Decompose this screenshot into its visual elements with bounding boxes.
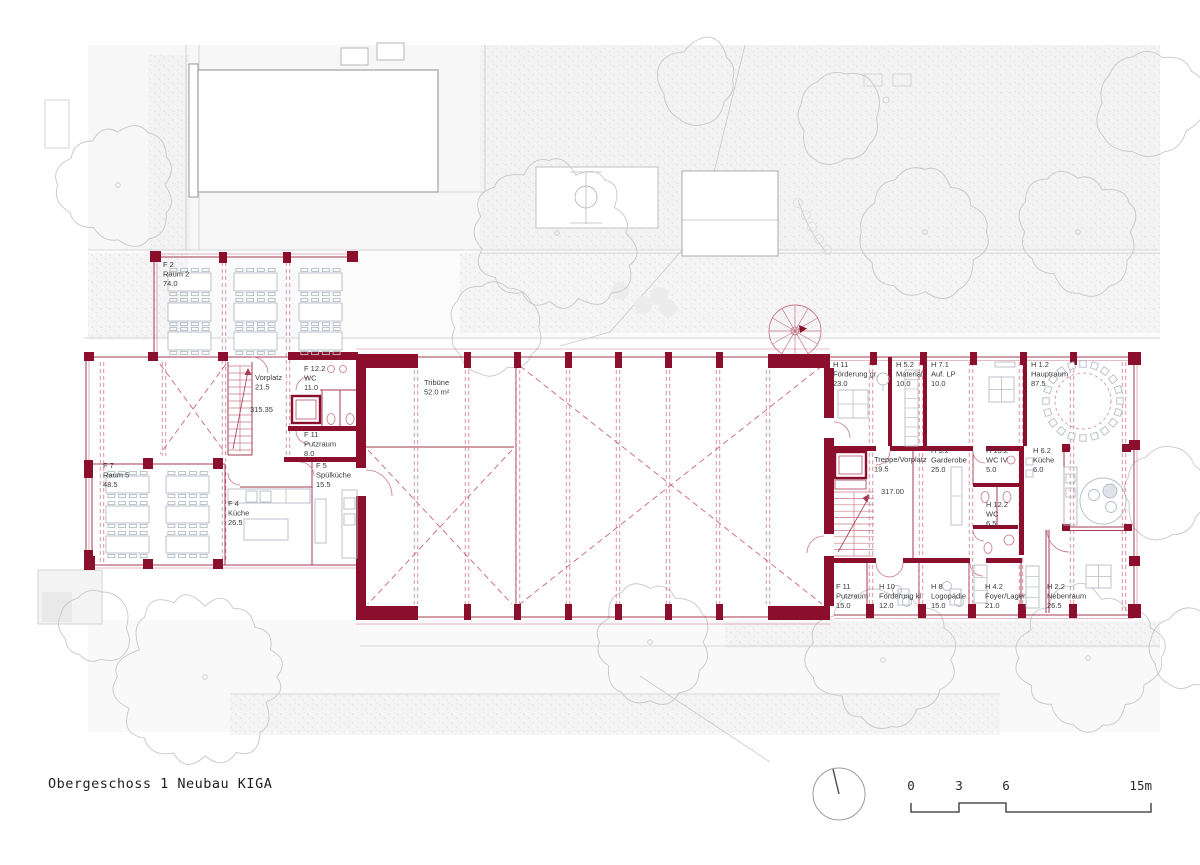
room-label-f11-right: F 11 Putzraum 15.0 xyxy=(836,582,870,610)
scale-6: 6 xyxy=(1002,778,1010,793)
plan-title: Obergeschoss 1 Neubau KIGA xyxy=(48,776,272,792)
room-label-treppe: Treppe/Vorplatz 19.5 xyxy=(874,455,929,474)
scale-bar: 0 3 6 15m xyxy=(907,778,1152,812)
room-label-h7-1: H 7.1 Auf. LP 10.0 xyxy=(931,360,958,388)
scale-3: 3 xyxy=(955,778,963,793)
room-label-f12-2: F 12.2 WC 11.0 xyxy=(304,364,327,392)
room-label-h8: H 8 Logopädie 15.0 xyxy=(931,582,968,610)
scale-15m: 15m xyxy=(1129,778,1152,793)
room-label-h1-2: H 1.2 Hauptraum 87.5 xyxy=(1031,360,1070,388)
sheet-footer: Obergeschoss 1 Neubau KIGA 0 3 6 15m xyxy=(48,768,1152,820)
level-left: 315.35 xyxy=(250,405,273,414)
room-label-f5: F 5 Spülküche 15.5 xyxy=(316,461,353,489)
room-label-h12-2: H 12.2 WC 6.5 xyxy=(986,500,1010,528)
plan-sheet: F 2 Raum 2 74.0 Vorplatz 21.5 F 12.2 WC … xyxy=(0,0,1200,865)
floor-plan-canvas: F 2 Raum 2 74.0 Vorplatz 21.5 F 12.2 WC … xyxy=(0,0,1200,865)
room-label-h6-2: H 6.2 Küche 6.0 xyxy=(1033,446,1056,474)
room-label-f11-left: F 11 Putzraum 8.0 xyxy=(304,430,338,458)
level-right: 317.00 xyxy=(881,487,904,496)
scale-0: 0 xyxy=(907,778,915,793)
north-arrow-icon xyxy=(813,768,865,820)
room-label-h13-2: H 13.2 WC IV 5.0 xyxy=(986,446,1010,474)
room-label-tribuene: Tribüne 52.0 m² xyxy=(424,378,451,397)
room-label-vorplatz: Vorplatz 21.5 xyxy=(255,373,284,392)
